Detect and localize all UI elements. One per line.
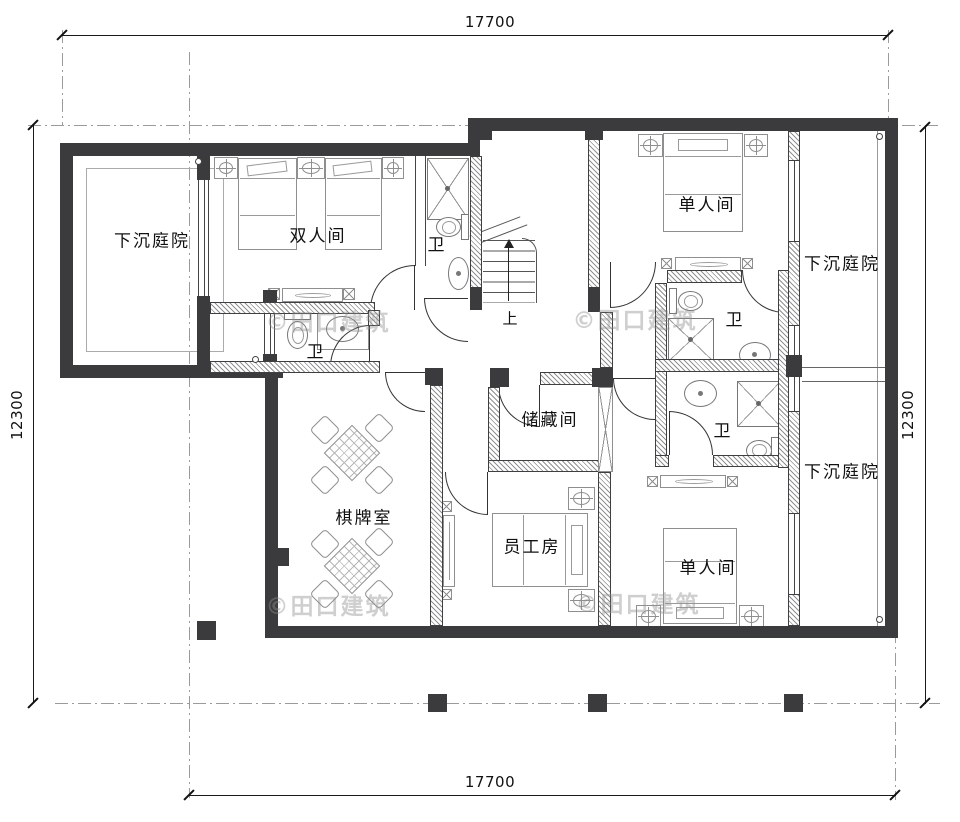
wall-exterior-left — [60, 143, 73, 378]
watermark: ©田口建筑 — [576, 585, 701, 619]
column — [197, 621, 216, 640]
dimension-right-label: 12300 — [899, 382, 917, 447]
wall-chess-right — [430, 385, 443, 626]
wall-pilaster — [585, 131, 603, 140]
axis-line-bottom — [55, 703, 940, 704]
room-label-single-top: 单人间 — [679, 191, 736, 216]
wall-top-step — [468, 118, 480, 156]
wall-pilaster — [480, 131, 492, 140]
wall-exterior-top-right — [468, 118, 898, 131]
wall-pilaster-chess — [277, 548, 289, 566]
wall-baths-middle — [655, 359, 790, 372]
dresser-detail — [675, 479, 713, 484]
nightstand — [638, 134, 663, 157]
axis-line-vertical-189 — [189, 52, 190, 798]
room-label-courtyard-left: 下沉庭院 — [114, 227, 190, 252]
wall-bath-rt-top — [667, 270, 742, 283]
dimension-bottom-label: 17700 — [390, 773, 590, 793]
bed-line — [565, 515, 566, 585]
door-leaf — [414, 265, 415, 310]
dresser-end-box — [727, 476, 738, 487]
wall-exterior-right — [885, 118, 898, 638]
bed-line — [240, 178, 295, 179]
courtyard-bridge-line — [802, 381, 885, 382]
window — [788, 377, 800, 411]
door-leaf — [613, 378, 655, 379]
wall-bath-rb-bottom-l — [655, 455, 669, 467]
door-arc-corridor — [613, 378, 655, 420]
wall-stairs-right — [588, 131, 600, 289]
wall-exterior-top-left — [60, 143, 480, 156]
door-arc-chess-room — [385, 372, 425, 412]
nightstand — [297, 157, 325, 179]
room-label-staff: 员工房 — [504, 533, 561, 558]
room-label-bath-right-bottom: 卫 — [714, 417, 733, 442]
bed-line — [240, 215, 295, 216]
stair-rail — [536, 252, 537, 303]
partition-double-room-bath — [415, 156, 426, 266]
dimension-line-right — [925, 127, 926, 704]
shower-icon — [737, 381, 781, 427]
sliding-door-courtyard — [198, 180, 209, 296]
wall-storage-bottom — [488, 460, 613, 472]
watermark: ©田口建筑 — [266, 303, 391, 337]
dresser-end-box — [742, 258, 753, 269]
dresser — [282, 288, 343, 302]
nightstand — [568, 487, 595, 510]
nightstand — [382, 157, 404, 179]
axis-line-vertical-895 — [895, 630, 896, 800]
bed-single-top — [663, 133, 743, 232]
dresser-end-box — [343, 288, 355, 300]
wall-window-seg — [788, 131, 800, 161]
wall-bath-left-bottom — [210, 361, 380, 373]
sink-icon — [684, 380, 717, 407]
wall-window-seg — [788, 241, 800, 326]
shower-icon — [427, 158, 469, 220]
dresser — [660, 475, 726, 488]
window — [788, 514, 800, 594]
room-label-courtyard-right-top: 下沉庭院 — [804, 250, 880, 275]
duct-shaft — [598, 387, 613, 472]
pillow — [678, 139, 728, 151]
door-arc-bath-right-bottom — [669, 411, 713, 455]
dimension-line-top — [62, 35, 888, 36]
pillow — [571, 525, 583, 575]
pillow — [332, 161, 372, 177]
chair — [363, 464, 394, 495]
floor-plan: 17700 17700 12300 12300 下沉庭院 双人间 卫 卫 上 单… — [0, 0, 960, 822]
column — [428, 694, 447, 712]
window — [788, 326, 800, 355]
door-arc-bath-center — [424, 298, 468, 342]
window — [788, 161, 800, 241]
chair — [309, 464, 340, 495]
bed-line — [327, 178, 380, 179]
door-leaf — [424, 298, 468, 299]
dresser-end-box — [647, 476, 658, 487]
dimension-line-left — [33, 125, 34, 703]
column-window-wall — [786, 355, 802, 377]
wall-bath-center-right — [470, 156, 482, 290]
dimension-left-label: 12300 — [8, 382, 26, 447]
axis-line-left-top — [62, 30, 63, 125]
column-chess-ne — [425, 368, 443, 385]
column — [784, 694, 803, 712]
nightstand — [739, 605, 764, 628]
courtyard-right-inner-line — [877, 131, 878, 626]
toilet-tank — [461, 214, 469, 240]
bed-double-1 — [238, 158, 297, 250]
wall-window-seg — [788, 411, 800, 514]
dresser-end-box — [661, 258, 672, 269]
door-leaf — [487, 472, 488, 515]
wall-storage-top — [540, 372, 594, 385]
wall-lobby-top — [263, 290, 277, 302]
column-storage-left — [490, 368, 509, 387]
room-label-double-room: 双人间 — [290, 222, 347, 247]
nightstand — [214, 157, 238, 179]
chair — [363, 412, 394, 443]
stair-arrow-head — [504, 239, 514, 248]
drain-circle — [252, 356, 259, 363]
wall-window-seg — [788, 594, 800, 626]
column — [588, 694, 607, 712]
room-label-chess: 棋牌室 — [336, 504, 393, 529]
room-label-single-bottom: 单人间 — [680, 554, 737, 579]
drain-circle — [876, 616, 883, 623]
watermark: ©田口建筑 — [266, 587, 391, 621]
courtyard-bridge-line — [802, 367, 885, 368]
dimension-top-label: 17700 — [390, 13, 590, 33]
room-label-courtyard-right-bottom: 下沉庭院 — [804, 458, 880, 483]
door-leaf — [669, 411, 670, 455]
label-stairs-up: 上 — [502, 308, 517, 329]
room-label-bath-right-top: 卫 — [726, 306, 745, 331]
wall-exterior-bottom — [265, 626, 898, 638]
room-label-storage: 储藏间 — [522, 406, 579, 431]
room-label-bath-center: 卫 — [428, 231, 447, 256]
column-storage-right — [592, 368, 613, 387]
dimension-line-bottom — [189, 795, 896, 796]
drain-circle — [195, 158, 202, 165]
bed-line — [327, 215, 380, 216]
stair-arrow-line — [508, 247, 509, 301]
door-leaf — [385, 372, 425, 373]
room-label-bath-left: 卫 — [307, 338, 326, 363]
wall-courtyard-right-bottom — [197, 296, 210, 366]
sink-icon — [448, 257, 469, 290]
watermark: ©田口建筑 — [573, 301, 698, 335]
axis-line-right-top — [888, 30, 889, 118]
bed-line — [665, 156, 741, 157]
wall-shelf — [443, 515, 455, 587]
dresser — [675, 257, 741, 271]
shelf-line — [449, 522, 450, 580]
pillow — [246, 161, 287, 177]
nightstand — [744, 134, 768, 157]
drain-circle — [876, 133, 883, 140]
dresser-detail — [295, 293, 331, 298]
wall-cap — [470, 287, 482, 310]
dresser-detail — [690, 262, 728, 267]
